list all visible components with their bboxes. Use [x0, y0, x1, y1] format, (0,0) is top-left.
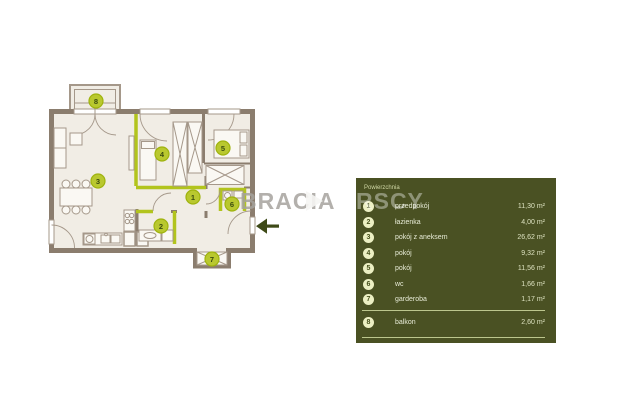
legend-row-label: balkon — [395, 319, 521, 326]
legend-row-number: 3 — [363, 232, 374, 243]
plan-marker-7: 7 — [205, 252, 219, 266]
plan-marker-8-label: 8 — [94, 97, 98, 106]
legend-row-number: 7 — [363, 294, 374, 305]
plan-marker-2: 2 — [154, 219, 168, 233]
legend-row-label: pokój — [395, 265, 518, 272]
legend-row-wc: 6 wc 1,66 m² — [362, 277, 545, 293]
real-estate-floorplan-page: 1 2 3 4 5 6 7 — [0, 0, 620, 400]
legend-row-number: 8 — [363, 317, 374, 328]
legend-row-lazienka: 2 łazienka 4,00 m² — [362, 215, 545, 231]
legend-row-area: 9,32 m² — [521, 250, 545, 257]
plan-marker-4: 4 — [155, 147, 169, 161]
watermark-text-right: RSCY — [356, 188, 424, 215]
legend-row-pokoj-5: 5 pokój 11,56 m² — [362, 261, 545, 277]
legend-separator-bottom — [362, 337, 545, 338]
plan-marker-1: 1 — [186, 190, 200, 204]
legend-row-label: wc — [395, 281, 521, 288]
legend-row-number: 4 — [363, 248, 374, 259]
floor-plan: 1 2 3 4 5 6 7 — [40, 78, 280, 290]
legend-row-label: pokój z aneksem — [395, 234, 517, 241]
entrance-arrow-icon — [256, 219, 279, 234]
plan-marker-7-label: 7 — [210, 255, 214, 264]
plan-marker-5-label: 5 — [221, 144, 225, 153]
plan-marker-6-label: 6 — [230, 200, 234, 209]
legend-row-label: pokój — [395, 250, 521, 257]
legend-row-number: 5 — [363, 263, 374, 274]
legend-row-area: 11,30 m² — [518, 203, 545, 210]
legend-row-area: 2,60 m² — [521, 319, 545, 326]
watermark-logo-triangle-icon — [306, 191, 323, 211]
legend-row-area: 1,17 m² — [521, 296, 545, 303]
legend-row-number: 6 — [363, 279, 374, 290]
plan-marker-5: 5 — [216, 141, 230, 155]
legend-row-label: łazienka — [395, 219, 521, 226]
legend-row-area: 26,62 m² — [517, 234, 545, 241]
legend-row-area: 1,66 m² — [521, 281, 545, 288]
plan-marker-3-label: 3 — [96, 177, 100, 186]
plan-marker-8: 8 — [89, 94, 103, 108]
legend-row-area: 4,00 m² — [521, 219, 545, 226]
plan-marker-1-label: 1 — [191, 193, 195, 202]
plan-marker-6: 6 — [225, 197, 239, 211]
legend-row-garderoba: 7 garderoba 1,17 m² — [362, 292, 545, 308]
legend-row-balkon: 8 balkon 2,60 m² — [362, 311, 545, 335]
plan-marker-2-label: 2 — [159, 222, 163, 231]
legend-row-label: garderoba — [395, 296, 521, 303]
plan-marker-3: 3 — [91, 174, 105, 188]
legend-row-pokoj-4: 4 pokój 9,32 m² — [362, 246, 545, 262]
legend-row-pokoj-z-aneksem: 3 pokój z aneksem 26,62 m² — [362, 230, 545, 246]
legend-row-area: 11,56 m² — [518, 265, 545, 272]
legend-row-number: 2 — [363, 217, 374, 228]
